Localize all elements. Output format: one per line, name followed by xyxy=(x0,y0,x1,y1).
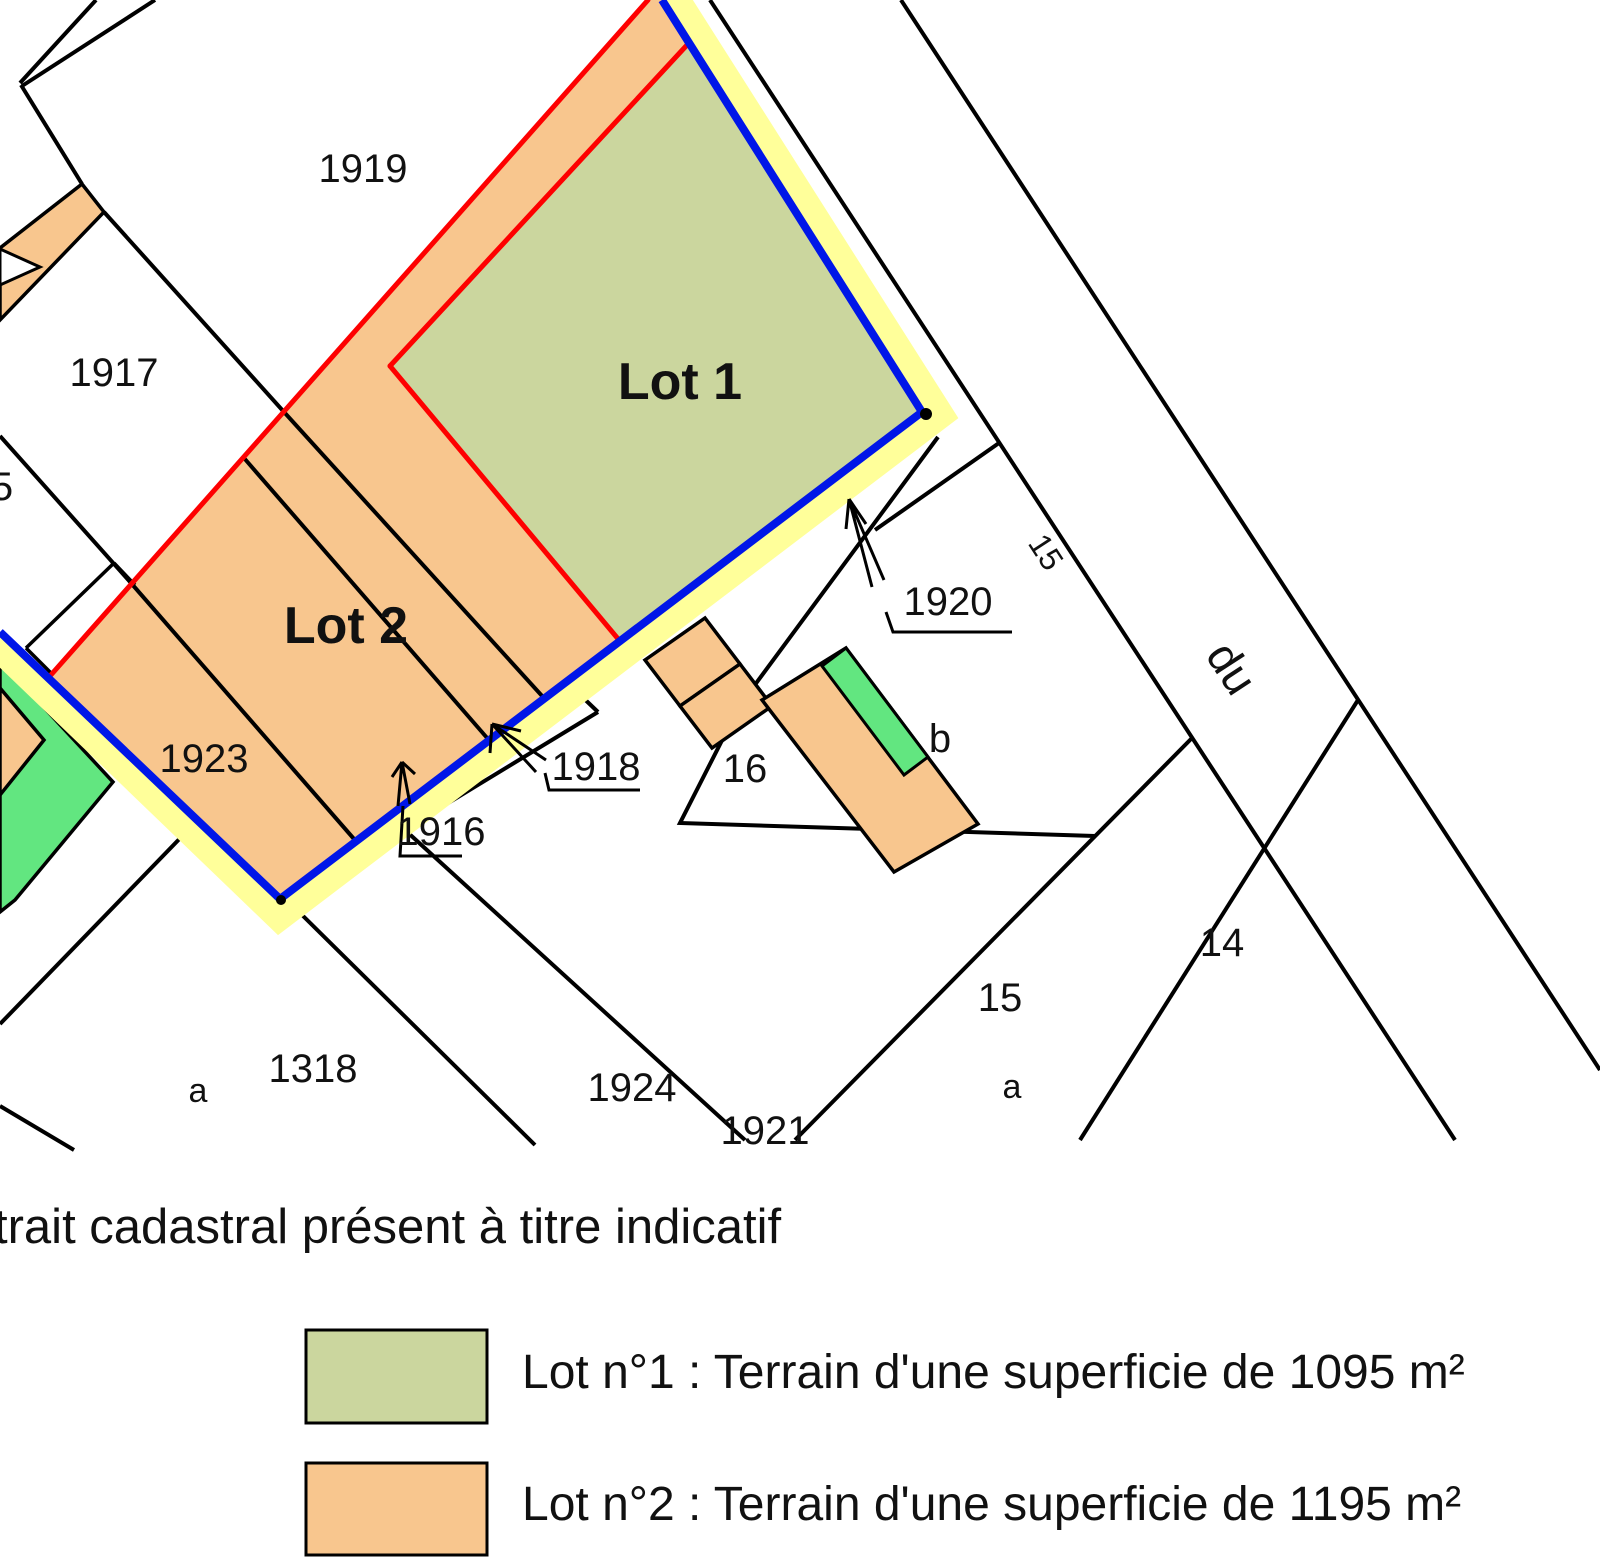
parcel-label-5: 5 xyxy=(0,465,13,509)
parcel-label-1923: 1923 xyxy=(160,737,249,781)
parcel-label-1916: 1916 xyxy=(397,810,486,854)
parcel-label-1318a: a xyxy=(189,1072,208,1110)
cadastral-map: 1919 1917 5 1923 Lot 2 Lot 1 1920 1918 1… xyxy=(0,0,1600,1567)
parcel-label-15a: a xyxy=(1003,1068,1022,1106)
parcel-label-15: 15 xyxy=(978,976,1023,1020)
lot1-label: Lot 1 xyxy=(618,353,742,411)
map-caption: trait cadastral présent à titre indicati… xyxy=(0,1200,781,1254)
parcel-label-1921: 1921 xyxy=(721,1109,810,1153)
parcel-label-1917: 1917 xyxy=(70,351,159,395)
parcel-label-1920: 1920 xyxy=(904,580,993,624)
legend-label-lot1: Lot n°1 : Terrain d'une superficie de 10… xyxy=(522,1346,1465,1399)
parcel-label-1924: 1924 xyxy=(588,1066,677,1110)
boundary-marker-south xyxy=(276,895,286,905)
parcel-label-1919: 1919 xyxy=(319,147,408,191)
cadastral-extract-page: 1919 1917 5 1923 Lot 2 Lot 1 1920 1918 1… xyxy=(0,0,1600,1567)
legend-label-lot2: Lot n°2 : Terrain d'une superficie de 11… xyxy=(522,1478,1461,1531)
parcel-label-1918: 1918 xyxy=(552,745,641,789)
boundary-marker-east xyxy=(920,408,932,420)
parcel-label-14: 14 xyxy=(1200,921,1245,965)
parcel-label-1318: 1318 xyxy=(269,1047,358,1091)
lot2-label: Lot 2 xyxy=(284,597,408,655)
legend-swatch-lot1 xyxy=(306,1330,487,1423)
legend-swatch-lot2 xyxy=(306,1463,487,1555)
parcel-label-b: b xyxy=(929,717,951,761)
parcel-label-16: 16 xyxy=(723,747,768,791)
